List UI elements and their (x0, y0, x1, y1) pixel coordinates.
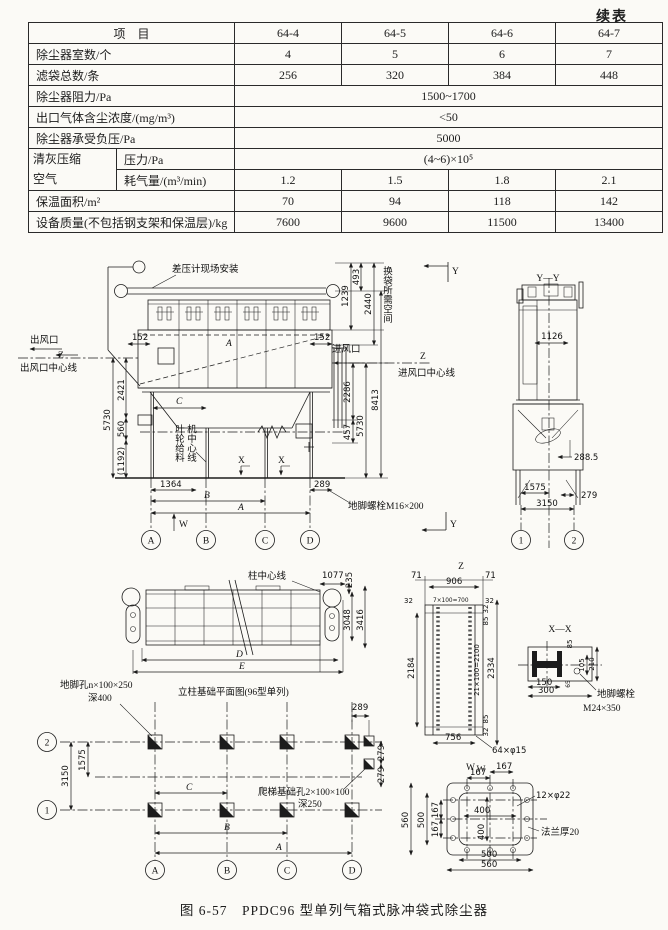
bag-space-label: 换袋所需空间 (381, 265, 393, 324)
svg-text:D: D (307, 537, 314, 547)
dim-279-a: 279 (377, 745, 387, 761)
column-axis-circles: A B C D (146, 861, 362, 880)
foundation-plan-title: 立柱基础平面图(96型单列) (178, 686, 289, 698)
dim-c: C (176, 397, 183, 407)
dim-5730-left: 5730 (103, 409, 113, 431)
dim-560-bottom: 560 (481, 860, 497, 870)
dim-500-left: 500 (417, 812, 427, 828)
feeder-centerline-line2: 机中心线 (185, 423, 197, 462)
front-elevation-view: 差压计现场安装 A (18, 261, 459, 550)
dim-400-v: 400 (477, 824, 487, 840)
svg-text:B: B (224, 867, 230, 877)
dim-500-bottom: 500 (481, 850, 497, 860)
anchor-hole-label: 地脚孔n×100×250 (60, 679, 133, 691)
dim-32-a: 32 (404, 597, 413, 605)
anchor-bolt-size-xx: M24×350 (583, 704, 621, 714)
dim-71-right: 71 (485, 571, 496, 581)
dim-279-yy: 279 (581, 491, 597, 501)
dim-b: B (204, 491, 210, 501)
z-view-title: Z (458, 562, 464, 572)
dim-167-top2: 167 (496, 762, 512, 772)
dim-a: A (237, 503, 244, 513)
dim-2421: 2421 (117, 379, 127, 401)
section-x-mark: X (278, 456, 285, 466)
dim-105: 105 (578, 658, 586, 671)
dim-a-found: A (275, 843, 282, 853)
dim-906: 906 (446, 577, 462, 587)
ladder-hole-depth: 深250 (298, 799, 322, 810)
dim-5730-right: 5730 (356, 415, 366, 437)
dim-152-right: 152 (314, 333, 330, 343)
dim-3416: 3416 (356, 609, 366, 631)
dim-493: 493 (352, 269, 362, 285)
footings (148, 735, 374, 817)
dim-d: D (235, 650, 243, 660)
dim-1364: 1364 (160, 480, 182, 490)
section-y-bottom: Y (450, 520, 457, 530)
column-axis-circles: A B C D (142, 531, 320, 550)
anchor-bolt-label-xx: 地脚螺栓 (597, 688, 636, 700)
dim-457: 457 (343, 424, 353, 440)
z-right-label: Z (420, 352, 426, 362)
dim-210: 210 (588, 657, 596, 670)
anchor-bolt-label: 地脚螺栓M16×200 (348, 500, 424, 512)
feeder-centerline-line1: 叶轮给料 (173, 424, 185, 463)
dim-167-top1: 167 (470, 768, 486, 778)
dim-700: 7×100=700 (433, 598, 469, 604)
svg-text:A: A (152, 867, 159, 877)
row-axis-circles: 2 1 (38, 733, 57, 820)
dim-32-c: 32 (482, 605, 490, 614)
dim-71-left: 71 (411, 571, 422, 581)
dim-3150-yy: 3150 (536, 499, 558, 509)
anchor-hole-depth: 深400 (88, 693, 112, 704)
svg-text:2: 2 (45, 739, 50, 749)
w-detail-view: W 167 167 12×φ22 法兰厚20 400 400 500 (401, 762, 579, 870)
w-direction-label: W (179, 520, 188, 530)
dim-756: 756 (445, 733, 461, 743)
dim-1575-yy: 1575 (524, 483, 546, 493)
dim-167-left2: 167 (431, 821, 441, 837)
dim-85-xx: 85 (566, 640, 574, 649)
scanned-handbook-page: 续表 项 目 64-4 64-5 64-6 64-7 除尘器室数/个 4 5 6… (0, 0, 668, 930)
technical-drawing: 差压计现场安装 A (0, 0, 668, 930)
outlet-label: 出风口 (30, 334, 59, 346)
dim-1077: 1077 (322, 571, 344, 581)
dim-288-5: 288.5 (574, 453, 598, 463)
svg-text:B: B (203, 537, 209, 547)
dim-560: 560 (117, 421, 127, 437)
dim-2100: 21×100=2100 (473, 644, 481, 696)
dim-b-found: B (224, 823, 230, 833)
yy-section-view: Y—Y 1126 288.5 1575 27 (512, 274, 599, 550)
dim-3048: 3048 (343, 609, 353, 631)
hole-count-12xphi22: 12×φ22 (536, 791, 570, 801)
flange-thickness-label: 法兰厚20 (541, 826, 579, 838)
row-axis-circles: 1 2 (512, 531, 584, 550)
xx-section-view: X—X 85 105 210 65 150 300 地脚螺栓 M24×350 (518, 625, 636, 714)
ladder-hole-label: 爬梯基础孔2×100×100 (258, 786, 350, 798)
section-x-mark: X (238, 456, 245, 466)
dim-2286: 2286 (343, 381, 353, 403)
section-y-top: Y (452, 267, 459, 277)
dim-e: E (238, 662, 245, 672)
dim-85-a: 85 (482, 617, 490, 626)
svg-text:D: D (349, 867, 356, 877)
svg-text:A: A (148, 537, 155, 547)
dim-167-left1: 167 (431, 802, 441, 818)
foundation-plan: 地脚孔n×100×250 深400 立柱基础平面图(96型单列) 2 (38, 679, 388, 880)
dim-279-b: 279 (377, 767, 387, 783)
dim-289: 289 (314, 480, 330, 490)
dim-1126: 1126 (541, 332, 563, 342)
dim-c-found: C (186, 783, 193, 793)
dim-152-left: 152 (132, 333, 148, 343)
dim-85-b: 85 (482, 715, 490, 724)
dim-a-body: A (225, 339, 232, 349)
dim-3150-found: 3150 (61, 765, 71, 787)
dim-560-left: 560 (401, 812, 411, 828)
svg-text:1: 1 (519, 537, 524, 547)
pulse-valves (156, 307, 319, 320)
svg-text:1: 1 (45, 807, 50, 817)
svg-text:C: C (262, 537, 268, 547)
outlet-centerline-label: 出风口中心线 (20, 362, 78, 374)
dim-2334: 2334 (487, 657, 497, 679)
yy-title: Y—Y (536, 274, 559, 284)
hole-count-64xphi15: 64×φ15 (492, 746, 526, 756)
dim-289-found: 289 (352, 703, 368, 713)
dim-1192: (1192) (117, 447, 127, 475)
dim-400-h: 400 (474, 806, 490, 816)
dim-32-d: 32 (482, 728, 490, 737)
dim-8413: 8413 (371, 389, 381, 411)
dim-235: 235 (345, 572, 355, 588)
dim-65: 65 (566, 680, 572, 688)
figure-caption: 图 6-57 PPDC96 型单列气箱式脉冲袋式除尘器 (0, 899, 668, 919)
inlet-label: 进风口 (332, 344, 361, 355)
top-plan-view: 柱中心线 1077 235 3048 3416 D E (122, 570, 366, 674)
z-detail-view: Z 906 71 71 32 7×100=700 32 2184 21×100=… (404, 562, 526, 773)
dim-300: 300 (538, 686, 554, 696)
dim-1575-found: 1575 (78, 749, 88, 771)
inlet-centerline-label: 进风口中心线 (398, 367, 456, 379)
dim-2184: 2184 (407, 657, 417, 679)
dim-2440: 2440 (364, 293, 374, 315)
z-left-label: Z (58, 351, 64, 361)
svg-text:C: C (284, 867, 290, 877)
dim-1239: 1239 (341, 285, 351, 307)
dim-32-b: 32 (485, 597, 494, 605)
gauge-label: 差压计现场安装 (172, 263, 239, 275)
column-centerline-label: 柱中心线 (248, 570, 287, 582)
xx-title: X—X (548, 625, 571, 635)
svg-text:2: 2 (572, 537, 577, 547)
